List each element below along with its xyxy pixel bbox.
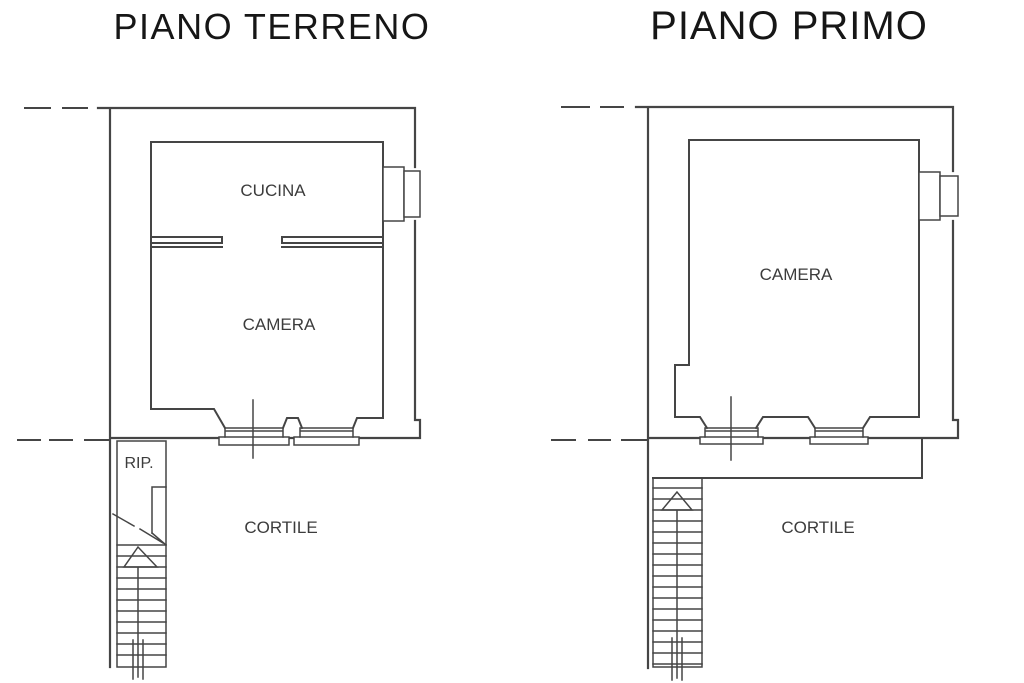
title-piano-terreno: PIANO TERRENO [114, 6, 431, 47]
room-label-cortile-terreno: CORTILE [244, 518, 317, 537]
room-label-cortile-primo: CORTILE [781, 518, 854, 537]
inner-room-walls [675, 140, 919, 428]
staircase [113, 441, 166, 679]
room-label-cucina: CUCINA [240, 181, 306, 200]
direction-arrow [662, 492, 692, 680]
plan-piano-terreno [18, 108, 420, 679]
interior-partition-wall [151, 237, 383, 247]
outer-walls [636, 107, 958, 668]
side-window [919, 172, 958, 220]
room-label-camera-primo: CAMERA [760, 265, 833, 284]
window-right [810, 428, 868, 444]
stair-treads [117, 545, 166, 655]
room-label-rip: RIP. [124, 455, 153, 472]
floor-plan-drawing: PIANO TERRENO PIANO PRIMO CUCINA CAMERA … [0, 0, 1024, 683]
window-left [219, 428, 289, 445]
boundary-dashed-line [18, 108, 110, 440]
plan-piano-primo [552, 107, 958, 680]
stair-break-lines [113, 514, 166, 545]
window-right [294, 428, 359, 445]
landing-balcony [653, 438, 922, 478]
side-window [383, 167, 420, 221]
closet-wall [152, 487, 166, 533]
room-label-camera-terreno: CAMERA [243, 315, 316, 334]
direction-arrow [124, 547, 157, 679]
boundary-dashed-line [552, 107, 648, 440]
staircase [653, 478, 702, 680]
title-piano-primo: PIANO PRIMO [650, 4, 928, 48]
